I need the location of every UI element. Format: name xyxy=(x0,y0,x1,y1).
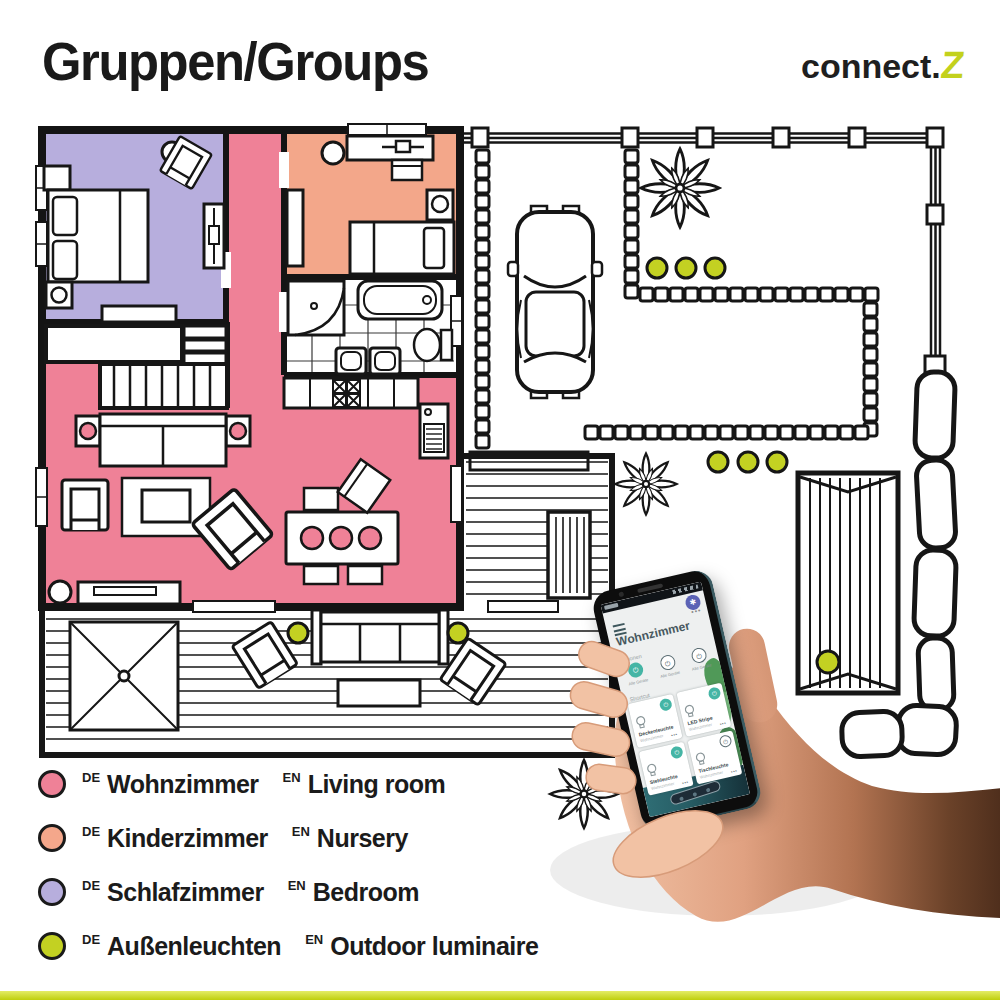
power-icon[interactable]: ⏻ xyxy=(627,661,645,679)
hand-arm xyxy=(0,0,1000,1000)
action-all-devices-1[interactable]: ⏻ Alle Geräte xyxy=(619,659,654,687)
power-icon[interactable]: ⏻ xyxy=(659,697,673,711)
bulb-icon xyxy=(646,762,659,778)
card-more-icon[interactable]: ••• xyxy=(730,767,738,774)
card-more-icon[interactable]: ••• xyxy=(719,720,727,727)
power-icon[interactable]: ⏻ xyxy=(658,654,676,672)
power-icon[interactable]: ⏻ xyxy=(718,734,732,748)
power-icon[interactable]: ⏻ xyxy=(690,646,708,664)
status-time xyxy=(604,603,619,610)
phone-camera xyxy=(618,591,624,597)
status-icons xyxy=(672,584,698,594)
bulb-icon xyxy=(635,715,648,731)
card-deckenleuchte[interactable]: ⏻ Deckenleuchte Wohnzimmer ••• xyxy=(628,694,683,748)
card-led-stripe[interactable]: ⏻ LED Stripe Wohnzimmer ••• xyxy=(676,683,731,737)
page: Gruppen/Groups connect.Z ✱ ••• Wohnzimme… xyxy=(0,0,1000,1000)
card-more-icon[interactable]: ••• xyxy=(670,731,678,738)
bulb-icon xyxy=(683,703,696,719)
action-all-devices-2[interactable]: ⏻ Alle Geräte xyxy=(651,652,686,680)
card-more-icon[interactable]: ••• xyxy=(681,779,689,786)
bulb-icon xyxy=(694,751,707,767)
app-title: Wohnzimmer xyxy=(615,618,691,649)
power-icon[interactable]: ⏻ xyxy=(707,686,721,700)
power-icon[interactable]: ⏻ xyxy=(670,745,684,759)
